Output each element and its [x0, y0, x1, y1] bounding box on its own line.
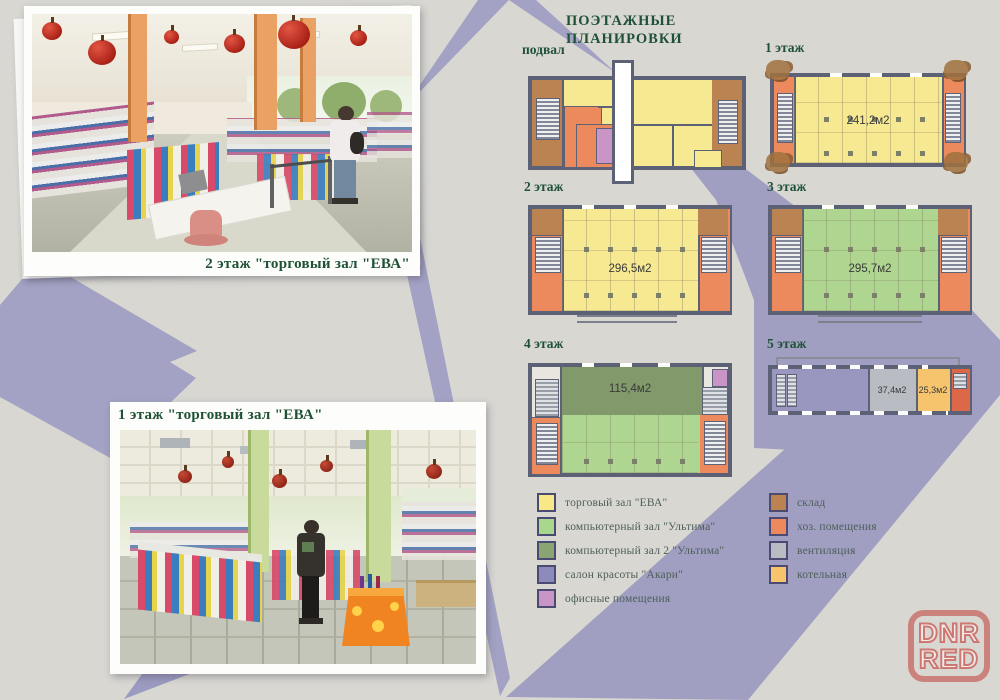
legend-swatch [537, 589, 556, 608]
page-title: ПОЭТАЖНЫЕ ПЛАНИРОВКИ [566, 12, 683, 48]
watermark-line1: DNR [914, 621, 984, 647]
apple-lantern [42, 22, 62, 40]
apple-lantern [88, 40, 116, 65]
area-label-floor5b: 25,3м2 [919, 385, 948, 395]
person-jeans [334, 160, 356, 198]
column-marker [824, 151, 829, 156]
floor-label-4: 4 этаж [524, 336, 563, 352]
column-marker [848, 293, 853, 298]
stairwell [536, 423, 558, 465]
store-photo-floor1 [120, 430, 476, 664]
legend-swatch [537, 493, 556, 512]
column-marker [824, 247, 829, 252]
floor-label-1: 1 этаж [765, 40, 804, 56]
storage-room [698, 209, 728, 236]
stairwell [536, 98, 560, 140]
stairwell [535, 237, 561, 273]
storage-room [532, 209, 562, 236]
column-marker [656, 247, 661, 252]
plan-basement [528, 76, 746, 170]
green-column [248, 430, 269, 572]
orange-column [128, 14, 147, 142]
promo-dot [372, 620, 384, 632]
legend-label: компьютерный зал 2 "Ультима" [565, 545, 724, 557]
apple-lantern [164, 30, 179, 44]
window-gap [582, 205, 594, 209]
area-label-floor1: 241,2м2 [846, 115, 889, 127]
plan-floor4: 115,4м2 [528, 363, 732, 477]
column-marker [608, 293, 613, 298]
window-dashes [778, 365, 928, 369]
column-marker [848, 151, 853, 156]
store-photo-floor2 [32, 14, 412, 252]
person-top [297, 533, 325, 577]
area-label-floor5a: 37,4м2 [878, 385, 907, 395]
column-marker [872, 151, 877, 156]
column-marker [920, 151, 925, 156]
green-column [366, 430, 391, 582]
bottle [360, 576, 364, 588]
brochure-page: 2 этаж "торговый зал "ЕВА" 1 этаж "торго… [0, 0, 1000, 700]
legend-swatch [769, 493, 788, 512]
column-marker [824, 117, 829, 122]
legend-item-ultima2: компьютерный зал 2 "Ультима" [537, 541, 724, 560]
apple-decoration [272, 474, 287, 488]
legend-item-ventilation: вентиляция [769, 541, 855, 560]
legend-label: склад [797, 497, 825, 509]
bottle [368, 574, 372, 588]
plan-floor1: 241,2м2 [770, 73, 966, 167]
office-room [712, 369, 728, 387]
column-marker [896, 293, 901, 298]
column-marker [584, 247, 589, 252]
column-marker [680, 293, 685, 298]
legend-label: торговый зал "ЕВА" [565, 497, 667, 509]
legend-swatch [537, 541, 556, 560]
column-marker [824, 293, 829, 298]
legend-item-eva: торговый зал "ЕВА" [537, 493, 667, 512]
person-pants [302, 576, 319, 618]
column-marker [920, 247, 925, 252]
legend-item-utility: хоз. помещения [769, 517, 877, 536]
bottle [376, 576, 380, 588]
vent-shaft [776, 374, 786, 407]
window-gap [870, 73, 882, 77]
promo-dot [390, 602, 399, 611]
person-shoes [332, 198, 358, 204]
apple-decoration [222, 456, 234, 468]
column-marker [896, 247, 901, 252]
apple-decoration [320, 460, 333, 472]
vent-shaft [953, 373, 967, 389]
legend-label: офисные помещения [565, 593, 670, 605]
legend-label: компьютерный зал "Ультима" [565, 521, 715, 533]
plan-floor3: 295,7м2 [768, 205, 972, 315]
window-gap [830, 73, 842, 77]
shoulder-bag [350, 132, 364, 154]
watermark-line2: RED [914, 647, 984, 673]
column-marker [896, 117, 901, 122]
window-gap [620, 363, 632, 367]
hall-grid [562, 415, 698, 473]
dnr-red-watermark: DNR RED [908, 610, 990, 682]
entrance-porch [577, 315, 677, 323]
page-title-line2: ПЛАНИРОВКИ [566, 30, 683, 48]
column-marker [920, 117, 925, 122]
tree-decoration [766, 60, 790, 80]
legend-swatch [537, 565, 556, 584]
shelf-row-right [402, 502, 476, 560]
apple-decoration [178, 470, 192, 483]
area-label-floor3: 295,7м2 [848, 263, 891, 275]
column-marker [608, 247, 613, 252]
column-marker [656, 459, 661, 464]
plan-floor5: 37,4м2 25,3м2 [768, 365, 972, 415]
legend-item-ultima: компьютерный зал "Ультима" [537, 517, 715, 536]
column-marker [584, 293, 589, 298]
barrier-post [270, 164, 274, 208]
floor-label-2: 2 этаж [524, 179, 563, 195]
column-marker [848, 247, 853, 252]
photo-caption-floor2: 2 этаж "торговый зал "ЕВА" [205, 256, 410, 273]
column-marker [608, 459, 613, 464]
office-chair-seat [184, 234, 228, 246]
computer-hall [802, 209, 938, 311]
wall [632, 124, 716, 126]
legend-item-storage: склад [769, 493, 825, 512]
person-head [304, 520, 319, 534]
window-gap [624, 205, 636, 209]
window-gap [666, 205, 678, 209]
apple-lantern [350, 30, 367, 46]
stairwell [704, 421, 726, 465]
column-marker [872, 293, 877, 298]
column-marker [896, 151, 901, 156]
legend-label: салон красоты "Акари" [565, 569, 683, 581]
window-gap [822, 205, 834, 209]
stairwell [777, 93, 793, 143]
legend-item-akari: салон красоты "Акари" [537, 565, 683, 584]
legend-swatch [769, 541, 788, 560]
legend-label: котельная [797, 569, 847, 581]
shelf-row-right [367, 112, 412, 158]
plan-floor2: 296,5м2 [528, 205, 732, 315]
vent-shaft [702, 387, 728, 415]
window-dashes [778, 411, 948, 415]
legend-swatch [769, 517, 788, 536]
column-marker [680, 459, 685, 464]
legend-label: вентиляция [797, 545, 855, 557]
window-gap [864, 205, 876, 209]
apple-decoration [426, 464, 442, 479]
column-marker [584, 459, 589, 464]
legend-item-offices: офисные помещения [537, 589, 670, 608]
stairwell [775, 237, 801, 273]
column-marker [632, 293, 637, 298]
photo-card-floor1: 1 этаж "торговый зал "ЕВА" [110, 402, 486, 674]
photo-card-floor2: 2 этаж "торговый зал "ЕВА" [24, 6, 420, 276]
person-head [338, 106, 354, 121]
photo-caption-floor1: 1 этаж "торговый зал "ЕВА" [118, 407, 323, 424]
promo-dot [352, 606, 362, 616]
sales-hall [562, 209, 698, 311]
column-marker [632, 247, 637, 252]
ceiling-vent [160, 438, 190, 448]
promo-stand-top [348, 588, 404, 596]
floor-label-5: 5 этаж [767, 336, 806, 352]
window-gap [658, 363, 670, 367]
floor-label-basement: подвал [522, 42, 565, 58]
legend-label: хоз. помещения [797, 521, 877, 533]
vent-shaft [535, 379, 559, 417]
stairwell [701, 237, 727, 273]
elevator-shaft [612, 60, 634, 184]
storage-room [772, 209, 802, 236]
tree-decoration [944, 152, 968, 172]
orange-column [254, 14, 277, 130]
legend-swatch [769, 565, 788, 584]
apple-lantern [224, 34, 245, 53]
page-title-line1: ПОЭТАЖНЫЕ [566, 12, 683, 30]
legend-swatch [537, 517, 556, 536]
stairwell [718, 100, 738, 144]
column-marker [872, 247, 877, 252]
person-shoes [299, 618, 323, 624]
window-gap [906, 205, 918, 209]
entrance-porch [818, 315, 922, 323]
apple-lantern [278, 20, 310, 49]
wood-bench [416, 580, 476, 607]
area-label-floor4: 115,4м2 [609, 383, 651, 395]
stairwell [945, 93, 961, 143]
stairwell [941, 237, 967, 273]
tree-decoration [766, 152, 790, 172]
area-label-floor2: 296,5м2 [608, 263, 651, 275]
person-scarf [302, 542, 314, 552]
tree-decoration [944, 60, 968, 80]
legend-item-boiler: котельная [769, 565, 847, 584]
window-gap [582, 363, 594, 367]
column-marker [632, 459, 637, 464]
vent-shaft [787, 374, 797, 407]
floor-label-3: 3 этаж [767, 179, 806, 195]
column-marker [656, 293, 661, 298]
column-marker [680, 247, 685, 252]
storage-room [938, 209, 968, 236]
wall [672, 124, 674, 166]
window-gap [910, 73, 922, 77]
small-room [694, 150, 722, 168]
promo-stand [342, 592, 410, 646]
column-marker [920, 293, 925, 298]
barrier-post [328, 156, 332, 204]
